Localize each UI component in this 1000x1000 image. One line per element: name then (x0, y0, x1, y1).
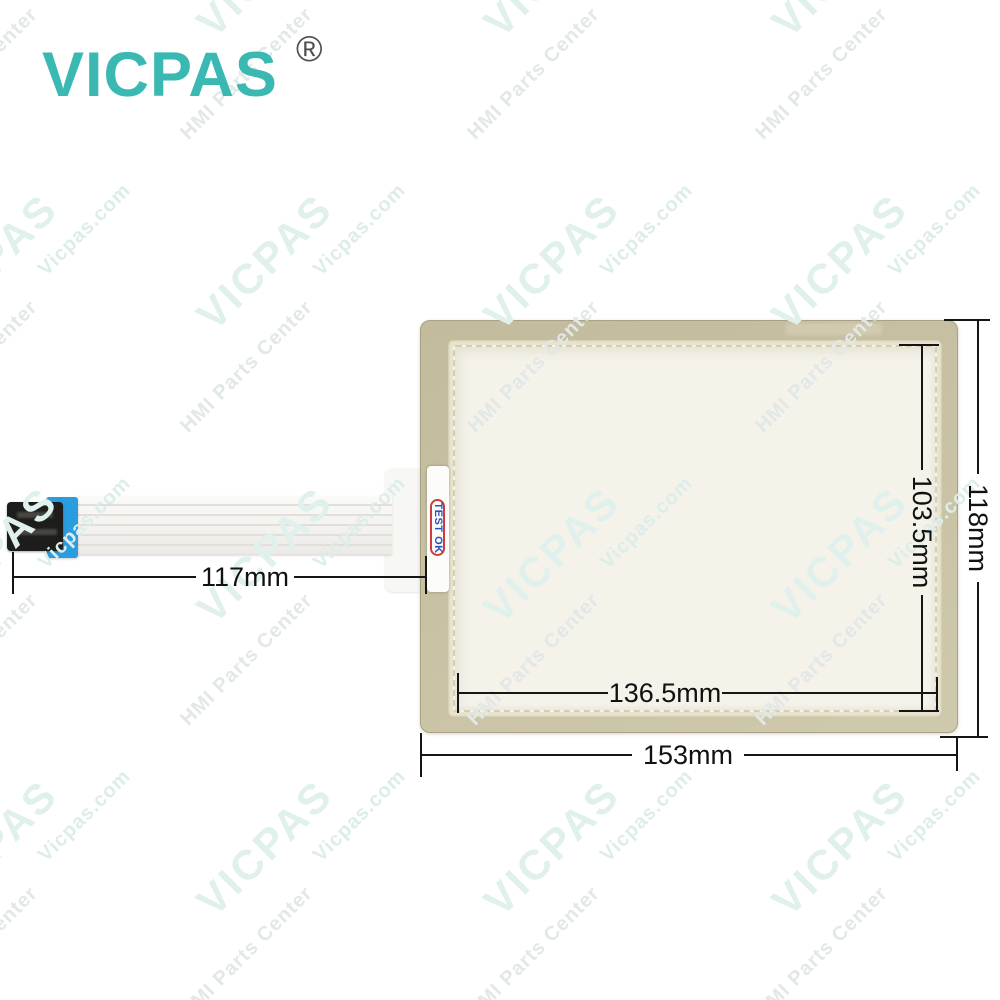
dimension-line (421, 754, 632, 756)
dimension-tick (420, 733, 422, 777)
bezel-etch-mark (786, 323, 882, 335)
dimension-tick (12, 552, 14, 594)
cable-length-label: 117mm (195, 562, 295, 592)
brand-logo: VICPAS ® (42, 44, 278, 107)
watermark-site-text: Vicpas.com (596, 179, 698, 281)
watermark-brand-text: VICPAS (0, 770, 68, 925)
test-ok-ring: TEST OK (430, 499, 445, 556)
watermark-site-text: Vicpas.com (884, 765, 986, 867)
watermark-brand-text: VICPAS (474, 770, 629, 925)
watermark-brand-text: VICPAS (762, 0, 917, 47)
connector-marking (17, 512, 53, 518)
watermark-tagline-text: HMI Parts Center (751, 882, 893, 1000)
watermark-site-text: Vicpas.com (34, 765, 136, 867)
watermark-tagline-text: HMI Parts Center (176, 296, 318, 438)
brand-logo-text: VICPAS (42, 44, 278, 107)
touch-panel-glass (420, 320, 958, 733)
watermark-tagline-text: HMI Parts Center (176, 882, 318, 1000)
panel-inner-frame (448, 340, 942, 717)
watermark-tile: VICPASVicpas.comHMI Parts Center (0, 698, 140, 998)
watermark-site-text: Vicpas.com (34, 179, 136, 281)
dimension-tick (956, 737, 958, 771)
watermark-tagline-text: HMI Parts Center (176, 589, 318, 731)
dimension-line (744, 754, 958, 756)
watermark-site-text: Vicpas.com (596, 765, 698, 867)
watermark-brand-text: VICPAS (0, 184, 68, 339)
watermark-tagline-text: HMI Parts Center (463, 882, 605, 1000)
panel-active-area (453, 345, 937, 712)
watermark-tile: VICPASVicpas.comHMI Parts Center (115, 698, 415, 998)
watermark-site-text: Vicpas.com (884, 179, 986, 281)
dimension-line (12, 576, 196, 578)
product-image: VICPASVicpas.comHMI Parts Center VICPASV… (0, 0, 1000, 1000)
watermark-brand-text: VICPAS (187, 770, 342, 925)
test-ok-text: TEST OK (432, 502, 444, 553)
watermark-tagline-text: HMI Parts Center (0, 589, 43, 731)
test-ok-label: TEST OK (427, 466, 449, 592)
connector-black-body (7, 502, 63, 551)
watermark-tagline-text: HMI Parts Center (751, 3, 893, 145)
watermark-tagline-text: HMI Parts Center (0, 882, 43, 1000)
registered-trademark-icon: ® (296, 28, 323, 70)
watermark-tagline-text: HMI Parts Center (0, 3, 43, 145)
watermark-site-text: Vicpas.com (309, 179, 411, 281)
watermark-tile: VICPASVicpas.comHMI Parts Center (690, 0, 990, 119)
watermark-brand-text: VICPAS (474, 184, 629, 339)
watermark-tagline-text: HMI Parts Center (463, 3, 605, 145)
watermark-brand-text: VICPAS (187, 184, 342, 339)
watermark-tagline-text: HMI Parts Center (0, 296, 43, 438)
dimension-line (977, 582, 979, 737)
watermark-tile: VICPASVicpas.comHMI Parts Center (115, 405, 415, 705)
dimension-tick (940, 736, 988, 738)
connector-marking (17, 529, 57, 535)
watermark-brand-text: VICPAS (762, 184, 917, 339)
watermark-tile: VICPASVicpas.comHMI Parts Center (402, 698, 702, 998)
panel-height-label: 118mm (963, 484, 993, 572)
watermark-tile: VICPASVicpas.comHMI Parts Center (115, 112, 415, 412)
watermark-tile: VICPASVicpas.comHMI Parts Center (690, 698, 990, 998)
watermark-brand-text: VICPAS (474, 0, 629, 47)
watermark-site-text: Vicpas.com (309, 765, 411, 867)
watermark-tile: VICPASVicpas.comHMI Parts Center (402, 0, 702, 119)
ribbon-cable (70, 496, 392, 555)
watermark-tile: VICPASVicpas.comHMI Parts Center (0, 112, 140, 412)
dimension-line (977, 320, 979, 474)
panel-width-label: 153mm (628, 740, 748, 770)
watermark-brand-text: VICPAS (762, 770, 917, 925)
